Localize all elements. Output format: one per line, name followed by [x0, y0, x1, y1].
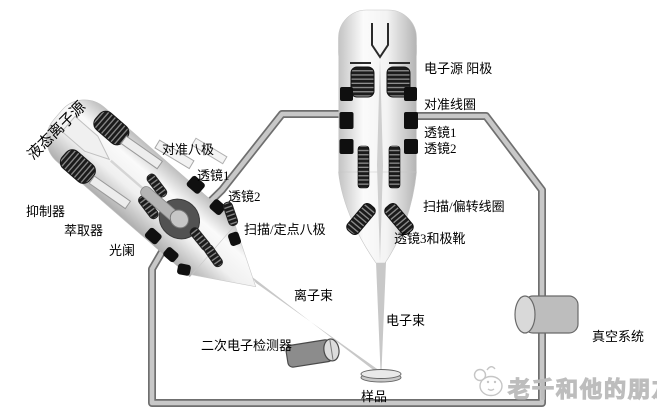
- lens2-block: [404, 139, 418, 154]
- fib-sem-diagram: 液态离子源 抑制器 萃取器 光阑 对准八极 透镜1 透镜2 扫描/定点八极 离子…: [0, 0, 657, 415]
- electron-column: [339, 10, 419, 263]
- label-extractor: 萃取器: [64, 224, 103, 239]
- se-detector-cylinder: [285, 338, 340, 368]
- label-vacuum-system: 真空系统: [592, 330, 644, 345]
- label-scan-deflection-coil: 扫描/偏转线圈: [423, 200, 505, 215]
- watermark-logo-icon: [475, 367, 503, 396]
- label-electron-beam: 电子束: [386, 314, 425, 329]
- alignment-coil-block: [404, 87, 417, 101]
- label-scan-spot-octopole: 扫描/定点八极: [244, 223, 326, 238]
- alignment-coil-block: [340, 87, 353, 101]
- label-alignment-octopole: 对准八极: [162, 143, 214, 158]
- electron-beam-line: [376, 262, 386, 371]
- label-suppressor: 抑制器: [26, 205, 65, 220]
- diagram-canvas: [0, 0, 657, 415]
- label-alignment-coil: 对准线圈: [424, 98, 476, 113]
- watermark-text: 老千和他的朋友们: [508, 372, 657, 404]
- inner-rod: [389, 146, 400, 188]
- vacuum-pump: [515, 296, 578, 333]
- label-e-lens2: 透镜2: [424, 142, 457, 157]
- label-ion-lens2: 透镜2: [228, 190, 261, 205]
- label-ion-lens1: 透镜1: [197, 169, 230, 184]
- inner-rod: [358, 146, 369, 188]
- lens1-block: [404, 112, 418, 129]
- label-lens3-pole-piece: 透镜3和极靴: [394, 232, 466, 247]
- gun-coil: [351, 67, 374, 97]
- label-e-lens1: 透镜1: [424, 126, 457, 141]
- label-sample: 样品: [361, 390, 387, 405]
- label-se-detector: 二次电子检测器: [201, 339, 292, 354]
- label-aperture: 光阑: [109, 244, 135, 259]
- lens2-block: [340, 139, 354, 154]
- lens1-block: [340, 112, 354, 129]
- label-electron-source-anode: 电子源 阳极: [424, 62, 492, 77]
- ion-column: [30, 55, 307, 318]
- sample-disc: [361, 370, 401, 383]
- label-ion-beam: 离子束: [294, 289, 333, 304]
